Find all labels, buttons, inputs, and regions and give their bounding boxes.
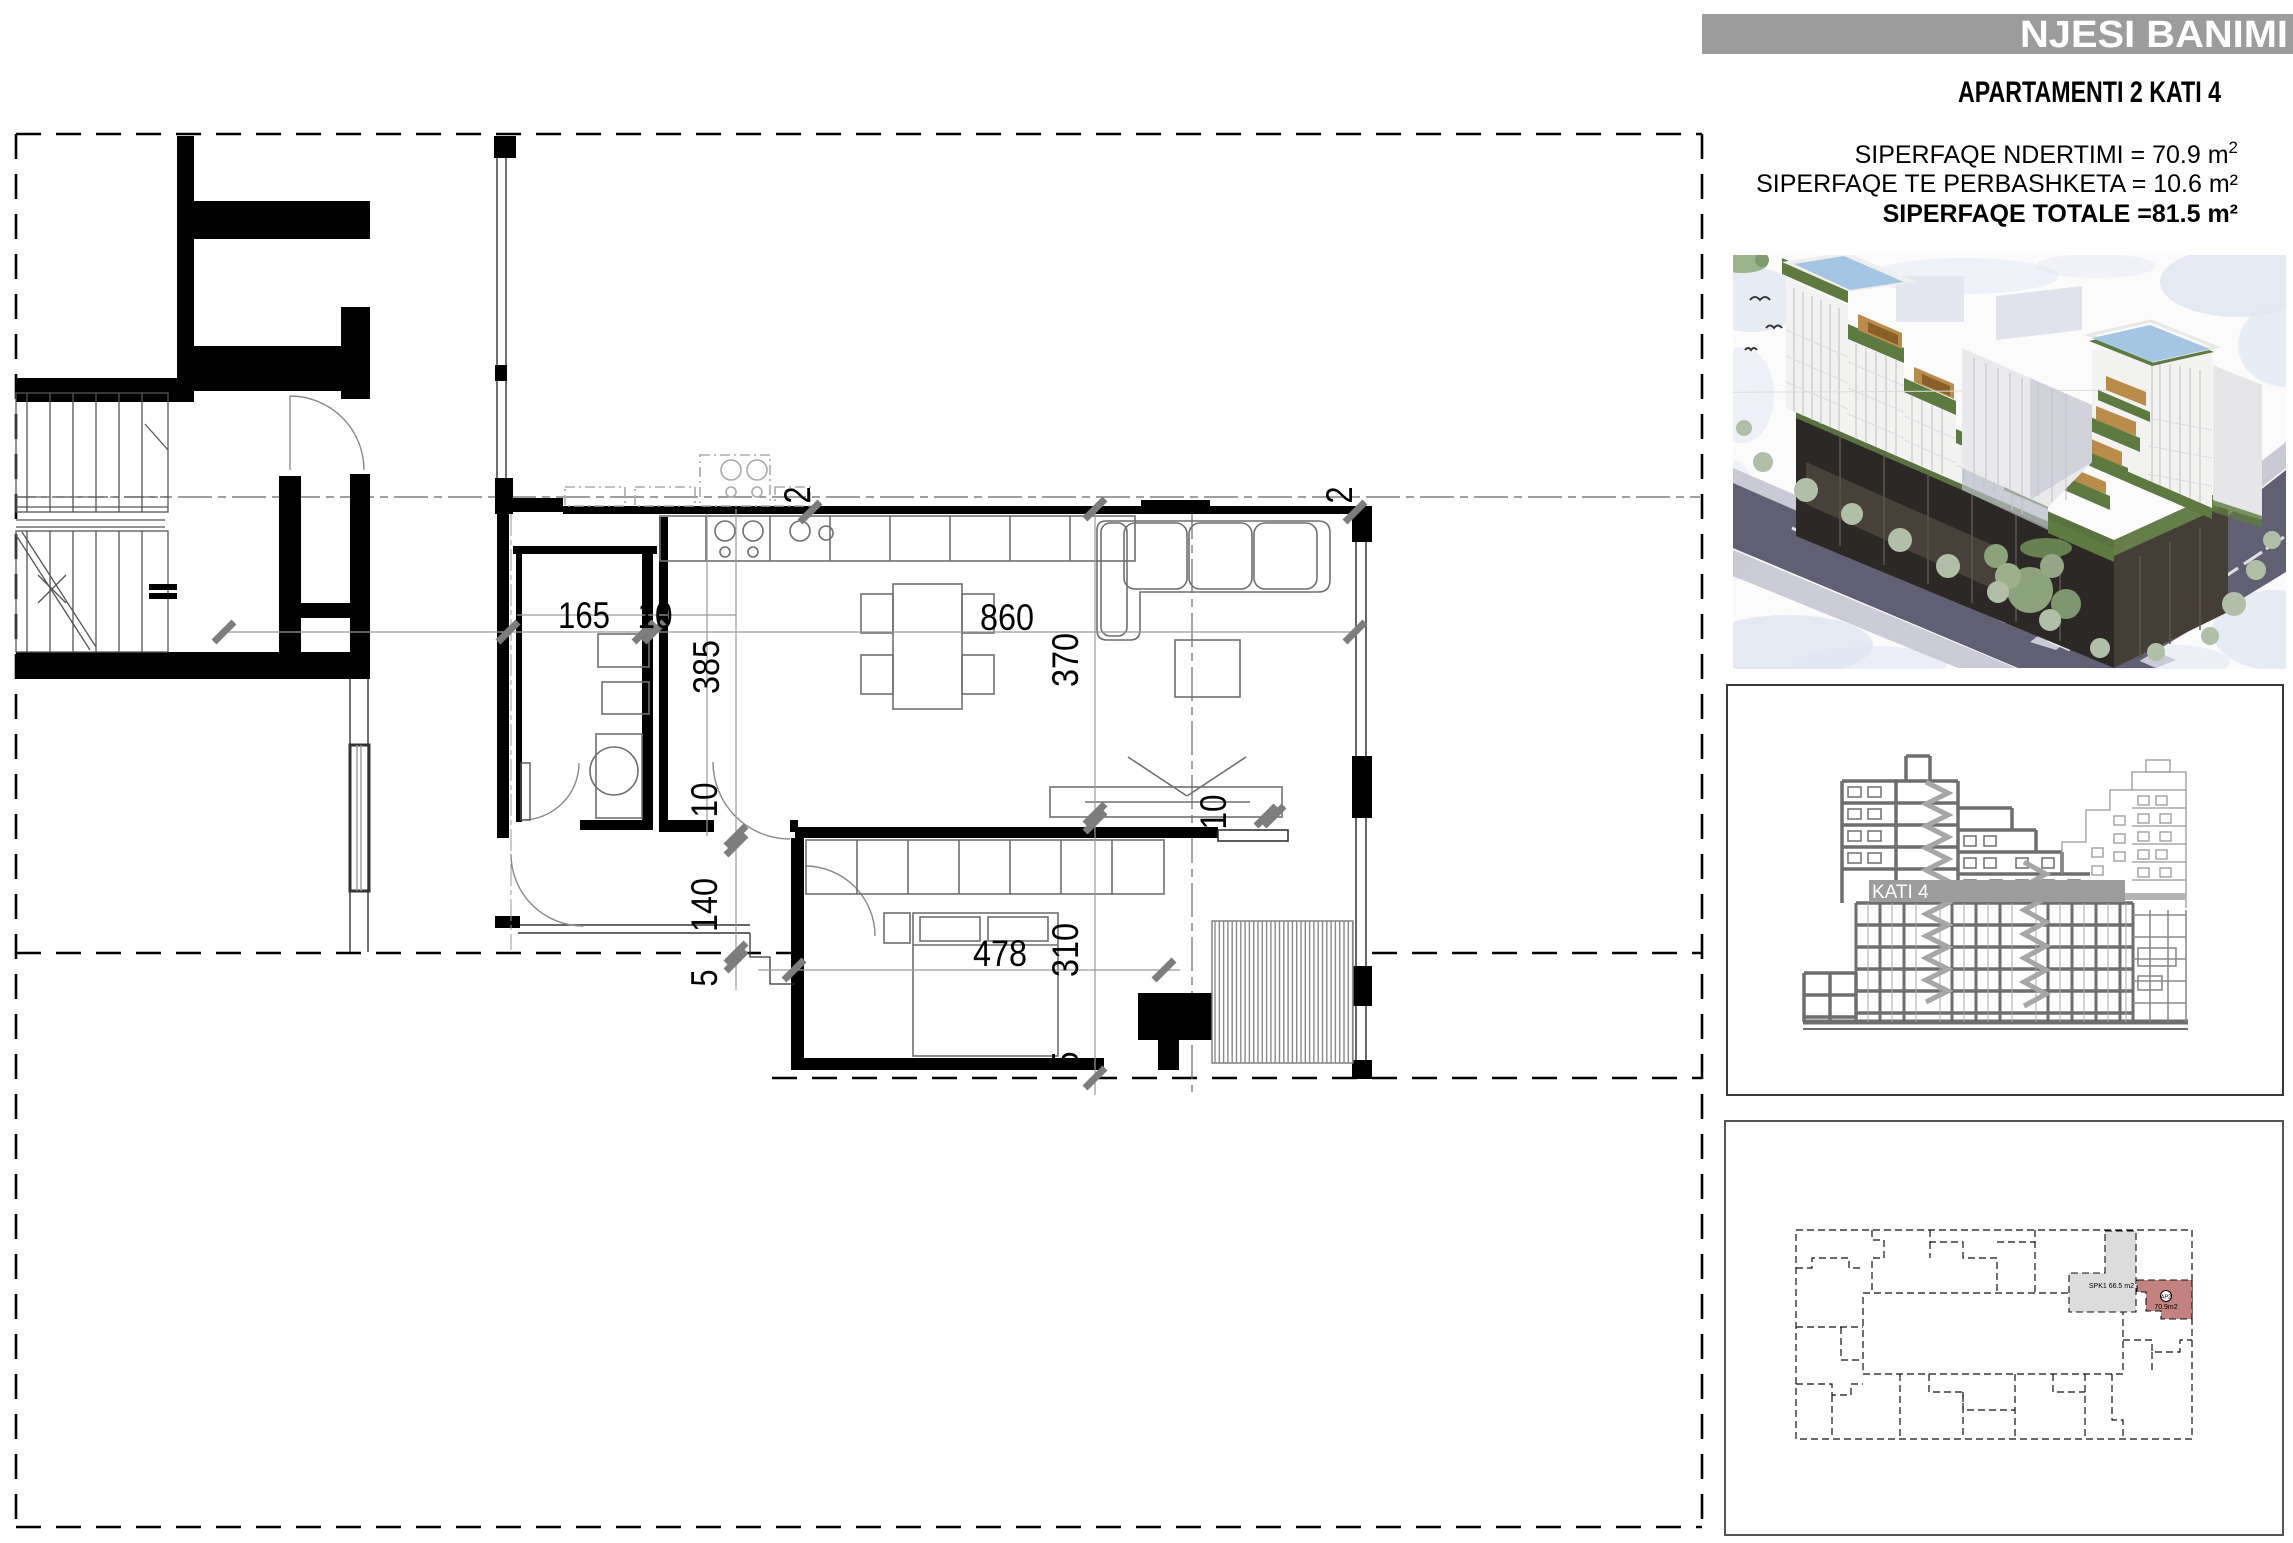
- svg-text:SIPERFAQE NDERTIMI = 70.9 m2: SIPERFAQE NDERTIMI = 70.9 m2: [1855, 138, 2238, 169]
- svg-text:5: 5: [1045, 1052, 1086, 1069]
- svg-text:140: 140: [684, 878, 725, 932]
- svg-text:10: 10: [1193, 795, 1234, 830]
- svg-text:860: 860: [980, 597, 1034, 638]
- svg-text:165: 165: [558, 595, 610, 636]
- svg-text:70.9m2: 70.9m2: [2154, 1304, 2177, 1311]
- svg-text:2: 2: [1319, 487, 1360, 504]
- svg-text:370: 370: [1045, 633, 1086, 687]
- svg-text:385: 385: [686, 640, 727, 694]
- svg-text:KATI 4: KATI 4: [1872, 882, 1929, 903]
- svg-text:5: 5: [684, 970, 725, 987]
- svg-text:SPK1 66.5 m2: SPK1 66.5 m2: [2089, 1283, 2134, 1290]
- svg-text:2: 2: [777, 487, 818, 504]
- svg-text:478: 478: [973, 933, 1027, 974]
- svg-text:AP2: AP2: [2161, 1295, 2171, 1301]
- svg-text:SIPERFAQE TOTALE =81.5 m²: SIPERFAQE TOTALE =81.5 m²: [1883, 200, 2238, 228]
- svg-text:10: 10: [684, 783, 725, 818]
- svg-text:APARTAMENTI 2 KATI 4: APARTAMENTI 2 KATI 4: [1958, 76, 2221, 109]
- svg-text:NJESI BANIMI: NJESI BANIMI: [2020, 14, 2288, 56]
- svg-text:SIPERFAQE TE PERBASHKETA = 10.: SIPERFAQE TE PERBASHKETA = 10.6 m²: [1756, 170, 2238, 198]
- svg-text:310: 310: [1045, 923, 1086, 977]
- svg-text:10: 10: [638, 595, 673, 636]
